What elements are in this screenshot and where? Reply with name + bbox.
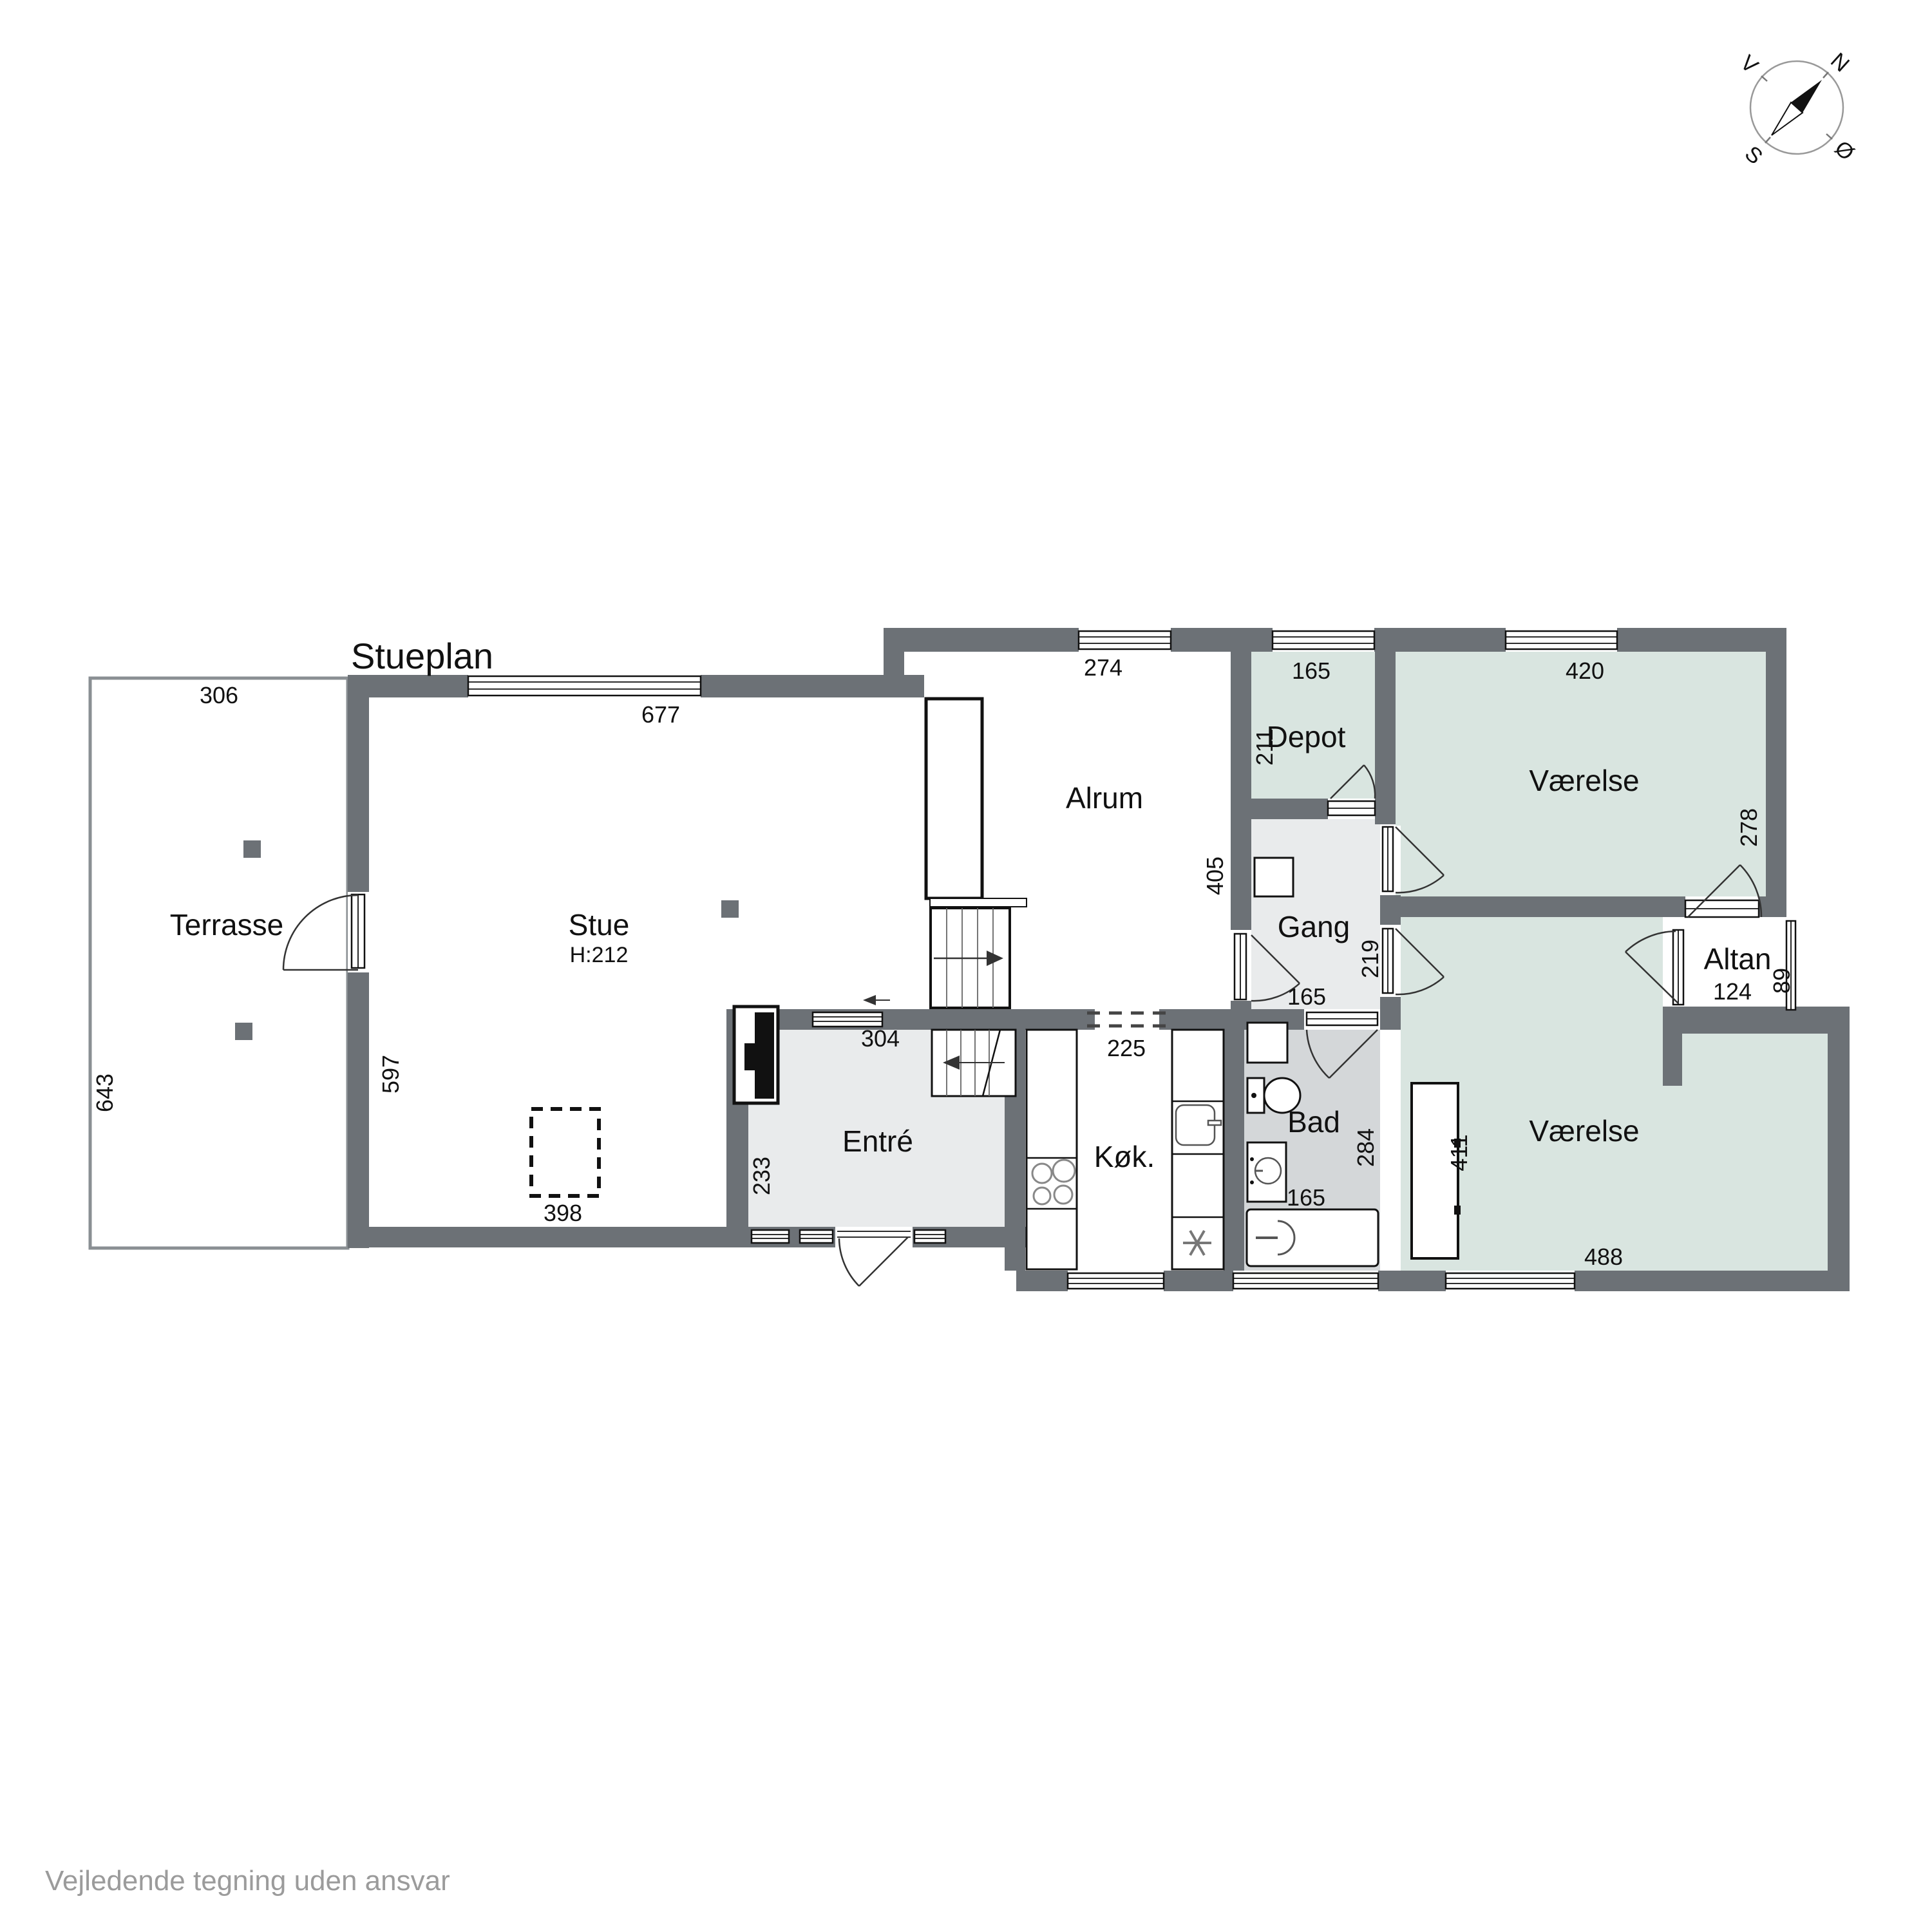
stue-ceiling-label: H:212 <box>570 943 629 967</box>
compass-south-label: S <box>1740 141 1767 169</box>
bad-label: Bad <box>1287 1105 1340 1139</box>
kok-label: Køk. <box>1094 1140 1155 1173</box>
dim-vaerelse-nord-depth: 278 <box>1736 808 1762 847</box>
disclaimer-text: Vejledende tegning uden ansvar <box>45 1865 450 1897</box>
gang-label: Gang <box>1278 910 1350 943</box>
window-vaerelse-syd-south <box>1446 1273 1575 1289</box>
floorplan-page: N S Ø V Stueplan Vejledende tegning uden… <box>0 0 1932 1932</box>
dim-alrum-depth: 405 <box>1202 857 1228 895</box>
window-entre-south-b <box>800 1230 833 1243</box>
terrasse-post-1 <box>243 840 261 858</box>
terrasse-label: Terrasse <box>170 908 283 942</box>
terrasse-outline <box>90 678 348 1248</box>
window-kok-south <box>1068 1273 1164 1289</box>
dim-terrasse-width: 306 <box>200 682 238 708</box>
dim-alrum-width: 274 <box>1084 654 1122 681</box>
terrasse-area <box>90 678 348 1248</box>
dim-stue-width: 677 <box>641 701 680 728</box>
window-bad-south <box>1233 1273 1378 1289</box>
window-entre-north-sidelight <box>813 1012 882 1027</box>
dim-depot-width: 165 <box>1292 658 1331 684</box>
dim-bad-window: 165 <box>1287 1184 1325 1211</box>
kitchen-counter-east <box>1172 1030 1224 1269</box>
stairs-run-arrow-icon <box>863 995 876 1005</box>
compass-east-label: Ø <box>1830 136 1859 166</box>
stue-dashed-feature <box>531 1109 599 1196</box>
dim-vaerelse-nord-width: 420 <box>1566 658 1604 684</box>
dim-bad-depth: 284 <box>1352 1128 1379 1167</box>
window-alrum-north <box>1079 631 1171 649</box>
dim-stue-depth: 597 <box>377 1055 404 1094</box>
dim-depot-depth: 211 <box>1251 728 1278 765</box>
dim-gang-door: 219 <box>1357 940 1383 978</box>
opening-alrum-kok <box>1087 1007 1167 1032</box>
dim-terrasse-depth: 643 <box>91 1074 118 1112</box>
compass-north-label: N <box>1826 48 1854 77</box>
window-entre-south-a <box>752 1230 789 1243</box>
stue-label: Stue <box>569 908 630 942</box>
dim-kok-opening: 225 <box>1107 1035 1146 1061</box>
chimney <box>926 699 1027 907</box>
stairs-up <box>931 908 1010 1008</box>
dim-gang-bad-opening: 165 <box>1287 983 1326 1010</box>
window-entre-south-c <box>914 1230 945 1243</box>
compass: N S Ø V <box>1736 48 1859 169</box>
dim-entre-depth: 233 <box>748 1157 775 1195</box>
kitchen-counter-west <box>1027 1030 1077 1269</box>
bath-sink-icon <box>1247 1142 1286 1202</box>
bath-cabinet <box>1247 1023 1287 1063</box>
floorplan-drawing: N S Ø V Stueplan Vejledende tegning uden… <box>0 0 1932 1932</box>
kitchen-faucet-icon <box>1208 1121 1221 1125</box>
dim-stue-feature: 398 <box>544 1200 582 1226</box>
dim-altan-depth: 89 <box>1768 968 1795 994</box>
fireplace <box>734 1007 778 1103</box>
compass-west-label: V <box>1736 50 1763 79</box>
window-stue-north <box>468 676 701 696</box>
alrum-label: Alrum <box>1066 781 1143 815</box>
bathtub-icon <box>1247 1209 1378 1266</box>
dim-entre-width: 304 <box>861 1025 900 1052</box>
dim-altan-width: 124 <box>1713 978 1752 1005</box>
depot-label: Depot <box>1267 720 1346 753</box>
gang-cabinet <box>1255 858 1293 896</box>
door-entre-front <box>835 1227 913 1286</box>
terrasse-post-2 <box>235 1023 252 1040</box>
stue-post <box>721 900 739 918</box>
altan-label: Altan <box>1704 942 1772 976</box>
page-title: Stueplan <box>351 636 493 676</box>
window-vaerelse-nord-north <box>1506 631 1617 649</box>
dim-vaerelse-syd-depth: 411 <box>1446 1134 1472 1171</box>
dim-vaerelse-syd-width: 488 <box>1584 1244 1623 1270</box>
vaerelse-nord-label: Værelse <box>1529 764 1639 797</box>
window-depot-north <box>1273 631 1374 649</box>
vaerelse-syd-label: Værelse <box>1529 1114 1639 1148</box>
entre-label: Entré <box>842 1124 913 1158</box>
altan-railing <box>1786 921 1795 1010</box>
